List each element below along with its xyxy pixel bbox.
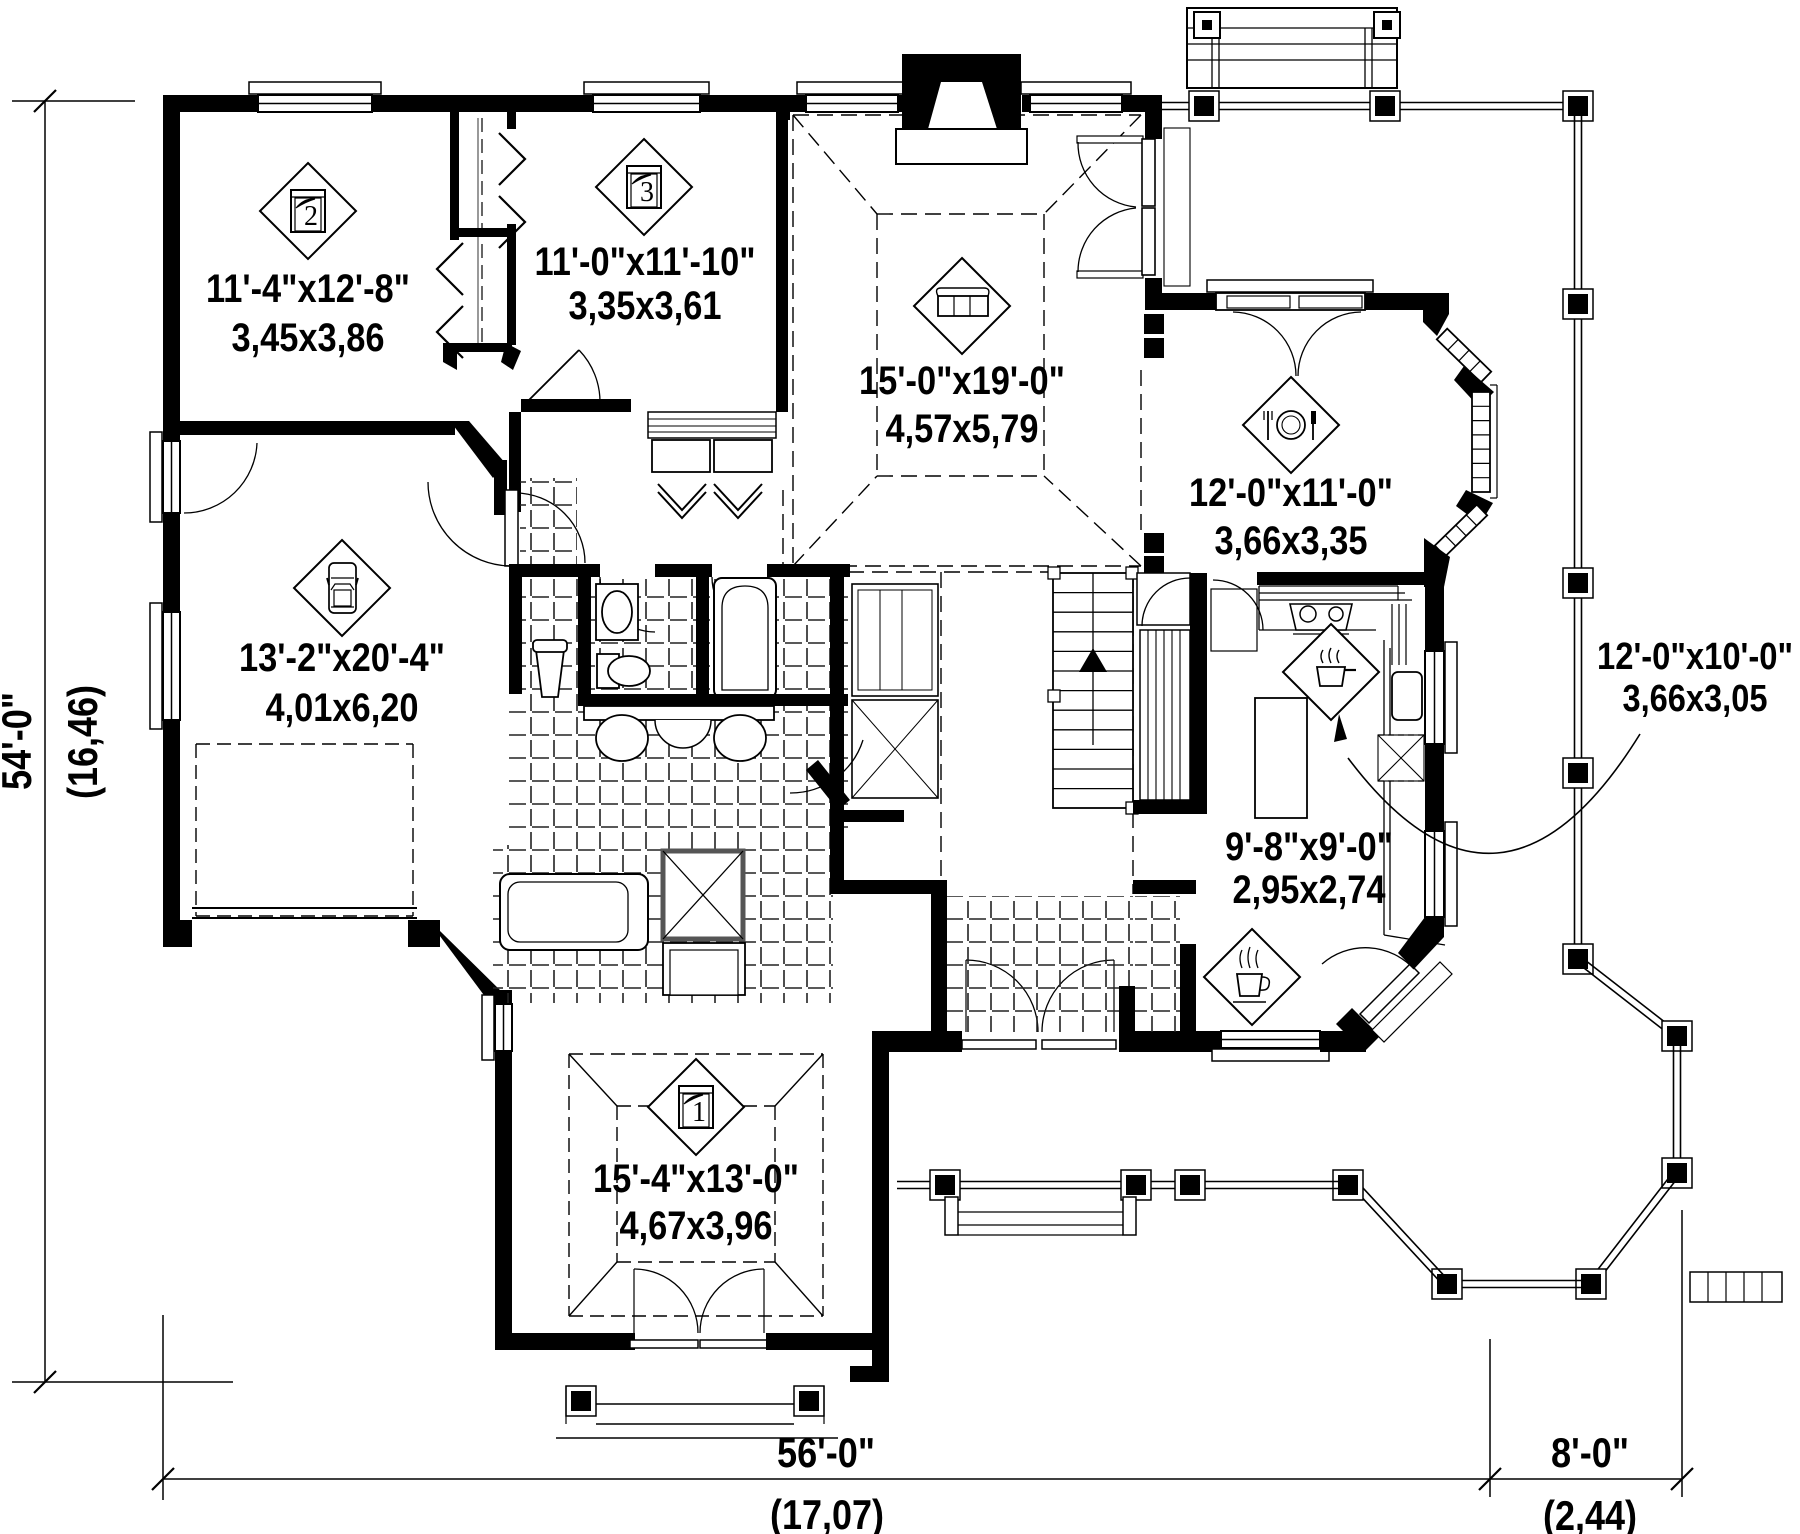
svg-text:4,01x6,20: 4,01x6,20 [266,686,419,730]
svg-text:3: 3 [640,177,654,208]
svg-text:12'-0"x11'-0": 12'-0"x11'-0" [1189,471,1393,515]
svg-text:3,35x3,61: 3,35x3,61 [569,284,722,328]
svg-text:9'-8"x9'-0": 9'-8"x9'-0" [1225,825,1393,869]
svg-text:(17,07): (17,07) [770,1491,884,1534]
svg-text:(16,46): (16,46) [59,685,106,799]
svg-text:1: 1 [692,1097,706,1128]
svg-text:54'-0": 54'-0" [0,692,40,790]
svg-text:4,67x3,96: 4,67x3,96 [620,1204,773,1248]
svg-text:11'-4"x12'-8": 11'-4"x12'-8" [206,267,410,311]
svg-text:8'-0": 8'-0" [1551,1429,1629,1476]
svg-text:15'-0"x19'-0": 15'-0"x19'-0" [859,359,1065,403]
svg-text:2: 2 [304,201,318,232]
svg-text:12'-0"x10'-0": 12'-0"x10'-0" [1597,636,1793,678]
svg-text:13'-2"x20'-4": 13'-2"x20'-4" [239,636,445,680]
svg-text:56'-0": 56'-0" [777,1429,875,1476]
svg-text:15'-4"x13'-0": 15'-4"x13'-0" [593,1157,799,1201]
svg-text:4,57x5,79: 4,57x5,79 [886,407,1039,451]
svg-text:2,95x2,74: 2,95x2,74 [1233,868,1387,912]
svg-text:3,66x3,35: 3,66x3,35 [1215,519,1368,563]
svg-text:(2,44): (2,44) [1543,1492,1637,1534]
svg-text:11'-0"x11'-10": 11'-0"x11'-10" [535,240,756,284]
svg-text:3,66x3,05: 3,66x3,05 [1623,678,1768,720]
svg-text:3,45x3,86: 3,45x3,86 [232,316,385,360]
